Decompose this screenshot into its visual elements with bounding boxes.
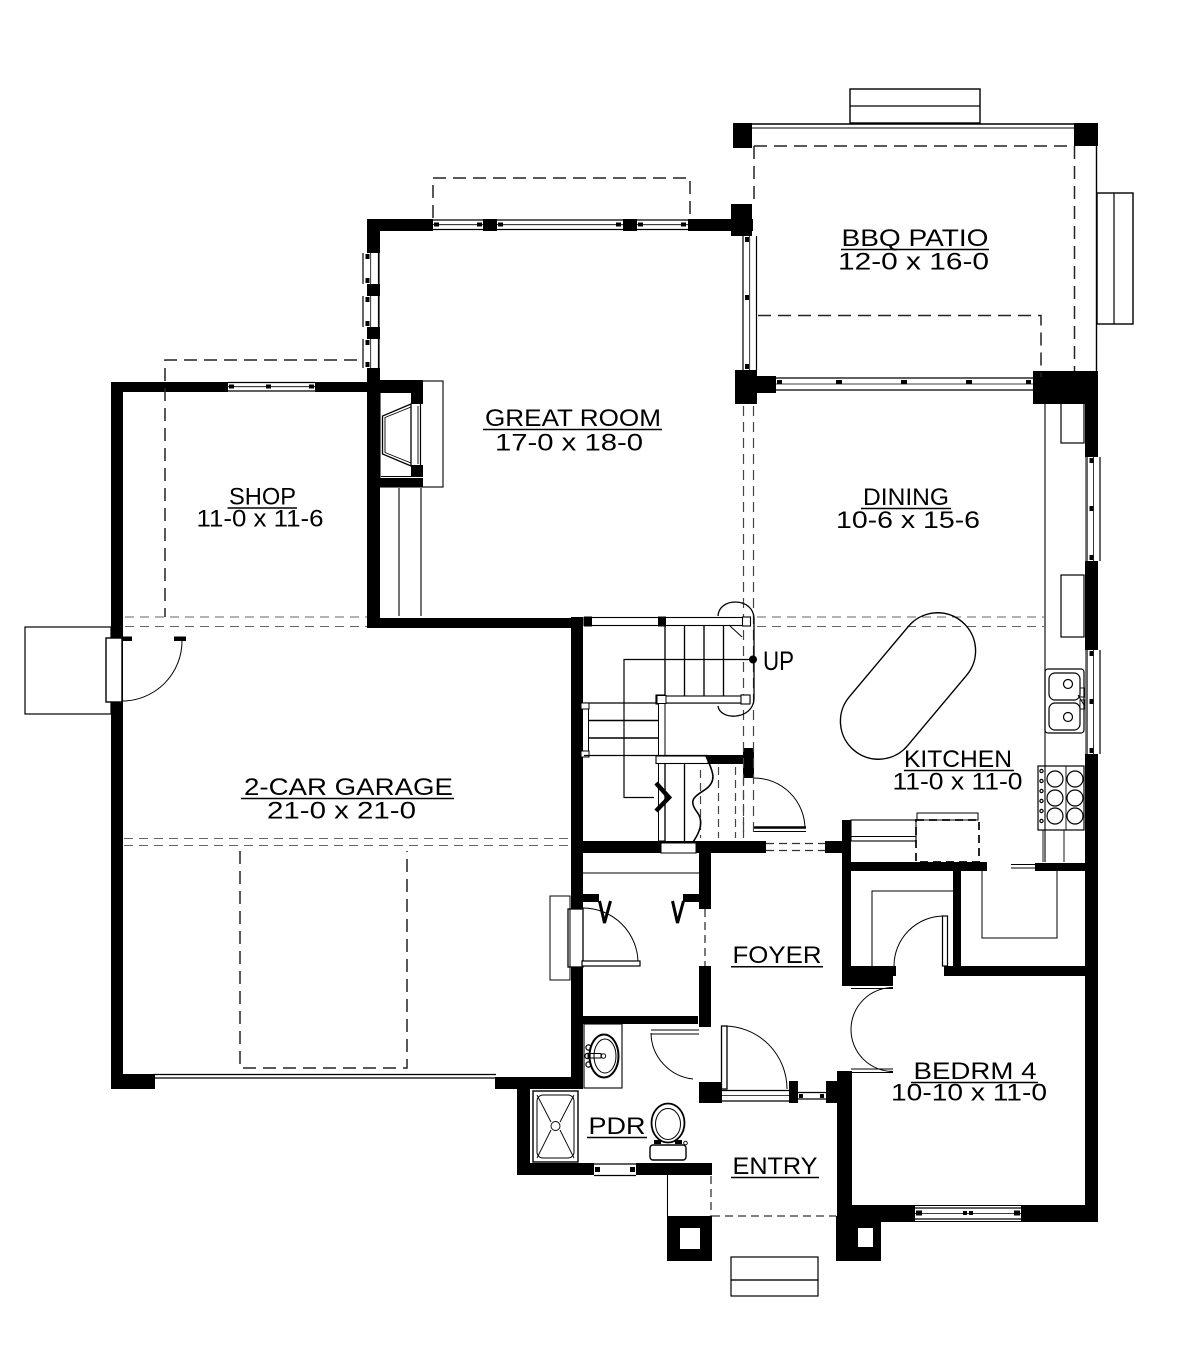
svg-text:10-10 x 11-0: 10-10 x 11-0 bbox=[891, 1080, 1047, 1107]
svg-text:ENTRY: ENTRY bbox=[733, 1153, 818, 1180]
svg-text:GREAT ROOM: GREAT ROOM bbox=[485, 405, 661, 432]
svg-text:PDR: PDR bbox=[589, 1113, 646, 1140]
svg-text:10-6 x 15-6: 10-6 x 15-6 bbox=[836, 507, 980, 534]
svg-text:FOYER: FOYER bbox=[733, 942, 822, 969]
svg-text:21-0 x 21-0: 21-0 x 21-0 bbox=[267, 798, 416, 825]
svg-text:11-0 x 11-6: 11-0 x 11-6 bbox=[197, 506, 324, 533]
svg-text:UP: UP bbox=[763, 646, 794, 676]
svg-text:17-0 x 18-0: 17-0 x 18-0 bbox=[495, 430, 643, 457]
svg-text:12-0 x 16-0: 12-0 x 16-0 bbox=[838, 249, 989, 276]
svg-text:11-0 x 11-0: 11-0 x 11-0 bbox=[893, 769, 1023, 796]
